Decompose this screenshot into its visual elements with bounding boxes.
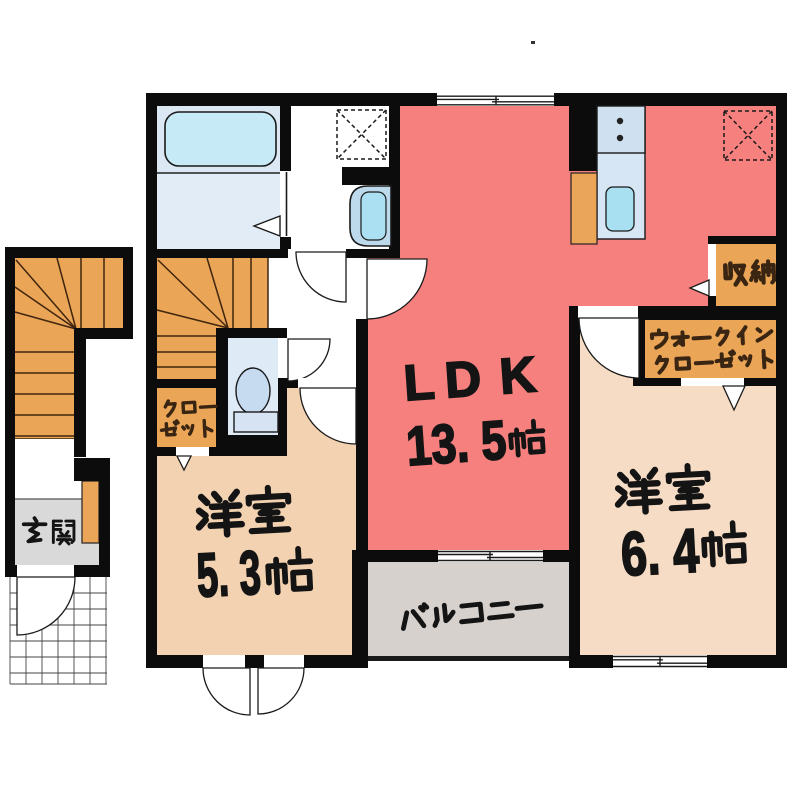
svg-text:6. 4: 6. 4 — [619, 517, 701, 590]
svg-text:D: D — [443, 350, 483, 408]
svg-text:K: K — [498, 346, 538, 404]
svg-text:13. 5: 13. 5 — [404, 408, 508, 477]
svg-text:5. 3: 5. 3 — [195, 539, 263, 611]
svg-text:L: L — [402, 353, 436, 411]
